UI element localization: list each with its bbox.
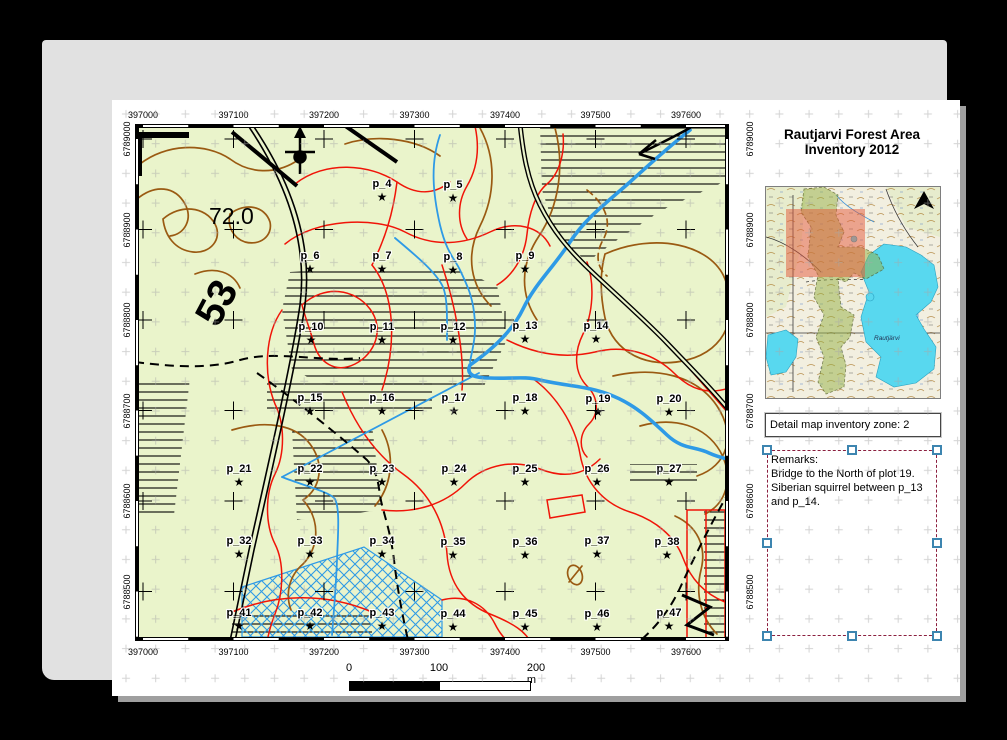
plot-star-icon: ★ [286, 406, 334, 416]
grid-label-x-top: 397500 [580, 110, 610, 120]
grid-label-x-top: 397100 [218, 110, 248, 120]
plot-marker-p_46: p_46★ [573, 607, 621, 632]
detail-zone-text: Detail map inventory zone: 2 [770, 419, 909, 431]
plot-marker-p_18: p_18★ [501, 391, 549, 416]
grid-label-x-top: 397000 [128, 110, 158, 120]
grid-label-y-left: 6788800 [122, 302, 132, 337]
plot-star-icon: ★ [645, 621, 693, 631]
plot-marker-p_36: p_36★ [501, 535, 549, 560]
plot-star-icon: ★ [645, 477, 693, 487]
grid-label-y-left: 6788700 [122, 393, 132, 428]
plot-label: p_6 [301, 250, 320, 262]
plot-marker-p_19: p_19★ [574, 392, 622, 417]
plot-markers-layer: p_4★p_5★p_6★p_7★p_8★p_9★p_10★p_11★p_12★p… [135, 124, 729, 641]
scalebar-bar [349, 681, 531, 691]
grid-label-x-bottom: 397000 [128, 647, 158, 657]
plot-star-icon: ★ [501, 477, 549, 487]
plot-label: p_24 [441, 463, 466, 475]
remarks-title: Remarks: [771, 453, 933, 467]
grid-label-x-bottom: 397200 [309, 647, 339, 657]
plot-label: p_42 [297, 607, 322, 619]
plot-star-icon: ★ [286, 549, 334, 559]
remarks-text: Bridge to the North of plot 19.Siberian … [771, 467, 933, 509]
layout-page[interactable]: 72.0 53 p_4★p_5★p_6★p_7★p_8★p_9★p_10★p_1… [112, 100, 960, 696]
plot-star-icon: ★ [645, 407, 693, 417]
plot-marker-p_32: p_32★ [215, 534, 263, 559]
plot-star-icon: ★ [501, 550, 549, 560]
scalebar-segment-white [440, 682, 530, 690]
plot-marker-p_25: p_25★ [501, 462, 549, 487]
plot-marker-p_33: p_33★ [286, 534, 334, 559]
grid-label-y-right: 6789000 [745, 121, 755, 156]
plot-label: p_35 [440, 536, 465, 548]
plot-star-icon: ★ [358, 621, 406, 631]
plot-marker-p_27: p_27★ [645, 462, 693, 487]
plot-star-icon: ★ [286, 621, 334, 631]
plot-label: p_32 [226, 535, 251, 547]
plot-label: p_37 [584, 535, 609, 547]
plot-label: p_10 [298, 321, 323, 333]
plot-label: p_44 [440, 608, 465, 620]
plot-marker-p_13: p_13★ [501, 319, 549, 344]
grid-label-x-bottom: 397100 [218, 647, 248, 657]
grid-label-x-bottom: 397500 [580, 647, 610, 657]
selection-handle-bottom-right[interactable] [932, 631, 942, 641]
plot-star-icon: ★ [501, 334, 549, 344]
map-title[interactable]: Rautjarvi Forest Area Inventory 2012 [761, 127, 943, 157]
grid-label-y-left: 6789000 [122, 121, 132, 156]
plot-marker-p_4: p_4★ [358, 177, 406, 202]
plot-marker-p_17: p_17★ [430, 391, 478, 416]
plot-marker-p_6: p_6★ [286, 249, 334, 274]
overview-map-item[interactable]: Rautjärvi [765, 186, 941, 399]
plot-star-icon: ★ [574, 407, 622, 417]
plot-label: p_26 [584, 463, 609, 475]
plot-label: p_17 [441, 392, 466, 404]
plot-marker-p_10: p_10★ [287, 320, 335, 345]
plot-label: p_45 [512, 608, 537, 620]
plot-star-icon: ★ [643, 550, 691, 560]
plot-label: p_4 [373, 178, 392, 190]
plot-label: p_19 [585, 393, 610, 405]
plot-label: p_46 [584, 608, 609, 620]
plot-star-icon: ★ [429, 265, 477, 275]
plot-star-icon: ★ [429, 193, 477, 203]
plot-star-icon: ★ [358, 477, 406, 487]
overview-zone-highlight [786, 209, 865, 277]
plot-marker-p_37: p_37★ [573, 534, 621, 559]
map-title-line2: Inventory 2012 [761, 142, 943, 157]
plot-label: p_34 [369, 535, 394, 547]
selection-handle-middle-left[interactable] [762, 538, 772, 548]
plot-star-icon: ★ [286, 264, 334, 274]
plot-star-icon: ★ [215, 621, 263, 631]
plot-label: p_5 [444, 179, 463, 191]
plot-star-icon: ★ [358, 549, 406, 559]
plot-marker-p_38: p_38★ [643, 535, 691, 560]
plot-star-icon: ★ [286, 477, 334, 487]
plot-star-icon: ★ [429, 335, 477, 345]
grid-label-y-left: 6788900 [122, 212, 132, 247]
plot-label: p_13 [512, 320, 537, 332]
plot-marker-p_22: p_22★ [286, 462, 334, 487]
plot-marker-p_20: p_20★ [645, 392, 693, 417]
plot-marker-p_34: p_34★ [358, 534, 406, 559]
scalebar-segment-black [350, 682, 440, 690]
plot-label: p_14 [583, 320, 608, 332]
layout-canvas[interactable]: 72.0 53 p_4★p_5★p_6★p_7★p_8★p_9★p_10★p_1… [42, 40, 947, 680]
grid-label-y-right: 6788500 [745, 574, 755, 609]
map-title-line1: Rautjarvi Forest Area [761, 127, 943, 142]
plot-star-icon: ★ [358, 192, 406, 202]
plot-label: p_33 [297, 535, 322, 547]
main-map-item[interactable]: 72.0 53 p_4★p_5★p_6★p_7★p_8★p_9★p_10★p_1… [135, 124, 729, 641]
plot-label: p_7 [373, 250, 392, 262]
plot-star-icon: ★ [573, 622, 621, 632]
plot-label: p_16 [369, 392, 394, 404]
plot-marker-p_26: p_26★ [573, 462, 621, 487]
plot-star-icon: ★ [501, 264, 549, 274]
grid-label-x-top: 397200 [309, 110, 339, 120]
plot-marker-p_14: p_14★ [572, 319, 620, 344]
plot-marker-p_21: p_21★ [215, 462, 263, 487]
plot-label: p_21 [226, 463, 251, 475]
plot-marker-p_47: p_47★ [645, 606, 693, 631]
plot-marker-p_24: p_24★ [430, 462, 478, 487]
grid-label-x-top: 397600 [671, 110, 701, 120]
plot-star-icon: ★ [573, 549, 621, 559]
plot-star-icon: ★ [358, 335, 406, 345]
plot-label: p_8 [444, 251, 463, 263]
grid-label-x-top: 397300 [399, 110, 429, 120]
selection-handle-bottom-middle[interactable] [847, 631, 857, 641]
plot-marker-p_44: p_44★ [429, 607, 477, 632]
grid-label-y-right: 6788600 [745, 483, 755, 518]
grid-label-y-right: 6788700 [745, 393, 755, 428]
plot-label: p_27 [656, 463, 681, 475]
selection-handle-bottom-left[interactable] [762, 631, 772, 641]
plot-marker-p_43: p_43★ [358, 606, 406, 631]
scalebar-item[interactable]: 0 100 200 m [349, 662, 549, 694]
plot-label: p_11 [370, 321, 394, 333]
plot-label: p_38 [654, 536, 679, 548]
plot-label: p_9 [516, 250, 535, 262]
grid-label-y-left: 6788500 [122, 574, 132, 609]
selection-handle-top-right[interactable] [932, 445, 942, 455]
plot-star-icon: ★ [287, 335, 335, 345]
grid-label-x-top: 397400 [490, 110, 520, 120]
plot-label: p_25 [512, 463, 537, 475]
plot-marker-p_7: p_7★ [358, 249, 406, 274]
plot-marker-p_12: p_12★ [429, 320, 477, 345]
plot-marker-p_15: p_15★ [286, 391, 334, 416]
plot-star-icon: ★ [573, 477, 621, 487]
grid-label-x-bottom: 397400 [490, 647, 520, 657]
remarks-line: Siberian squirrel between p_13 [771, 481, 933, 495]
plot-star-icon: ★ [358, 406, 406, 416]
plot-label: p_47 [656, 607, 681, 619]
qgis-layout-window: 72.0 53 p_4★p_5★p_6★p_7★p_8★p_9★p_10★p_1… [0, 0, 1007, 740]
plot-star-icon: ★ [215, 477, 263, 487]
plot-star-icon: ★ [430, 477, 478, 487]
grid-label-y-left: 6788600 [122, 483, 132, 518]
plot-marker-p_23: p_23★ [358, 462, 406, 487]
plot-marker-p_16: p_16★ [358, 391, 406, 416]
grid-label-x-bottom: 397300 [399, 647, 429, 657]
remarks-line: and p_14. [771, 495, 933, 509]
overview-map-canvas: Rautjärvi [766, 187, 940, 398]
plot-marker-p_41: p_41★ [215, 606, 263, 631]
plot-label: p_18 [512, 392, 537, 404]
plot-marker-p_11: p_11★ [358, 320, 406, 345]
detail-zone-label[interactable]: Detail map inventory zone: 2 [765, 413, 941, 437]
scalebar-tick-100: 100 [430, 662, 448, 674]
plot-label: p_41 [226, 607, 251, 619]
plot-label: p_43 [369, 607, 394, 619]
plot-star-icon: ★ [501, 622, 549, 632]
plot-label: p_36 [512, 536, 537, 548]
remarks-item-selected[interactable]: Remarks: Bridge to the North of plot 19.… [767, 450, 937, 636]
overview-lake-label: Rautjärvi [874, 335, 900, 342]
grid-label-x-bottom: 397600 [671, 647, 701, 657]
plot-marker-p_35: p_35★ [429, 535, 477, 560]
plot-marker-p_42: p_42★ [286, 606, 334, 631]
grid-label-y-right: 6788900 [745, 212, 755, 247]
remarks-line: Bridge to the North of plot 19. [771, 467, 933, 481]
plot-label: p_20 [656, 393, 681, 405]
plot-star-icon: ★ [429, 622, 477, 632]
plot-star-icon: ★ [358, 264, 406, 274]
plot-star-icon: ★ [215, 549, 263, 559]
plot-label: p_12 [440, 321, 465, 333]
plot-label: p_15 [297, 392, 322, 404]
selection-handle-top-middle[interactable] [847, 445, 857, 455]
plot-marker-p_5: p_5★ [429, 178, 477, 203]
plot-marker-p_9: p_9★ [501, 249, 549, 274]
selection-handle-top-left[interactable] [762, 445, 772, 455]
plot-marker-p_8: p_8★ [429, 250, 477, 275]
grid-label-y-right: 6788800 [745, 302, 755, 337]
selection-handle-middle-right[interactable] [932, 538, 942, 548]
plot-label: p_22 [297, 463, 322, 475]
plot-label: p_23 [369, 463, 394, 475]
plot-star-icon: ★ [501, 406, 549, 416]
plot-star-icon: ★ [430, 406, 478, 416]
plot-star-icon: ★ [429, 550, 477, 560]
scalebar-tick-0: 0 [346, 662, 352, 674]
plot-star-icon: ★ [572, 334, 620, 344]
plot-marker-p_45: p_45★ [501, 607, 549, 632]
